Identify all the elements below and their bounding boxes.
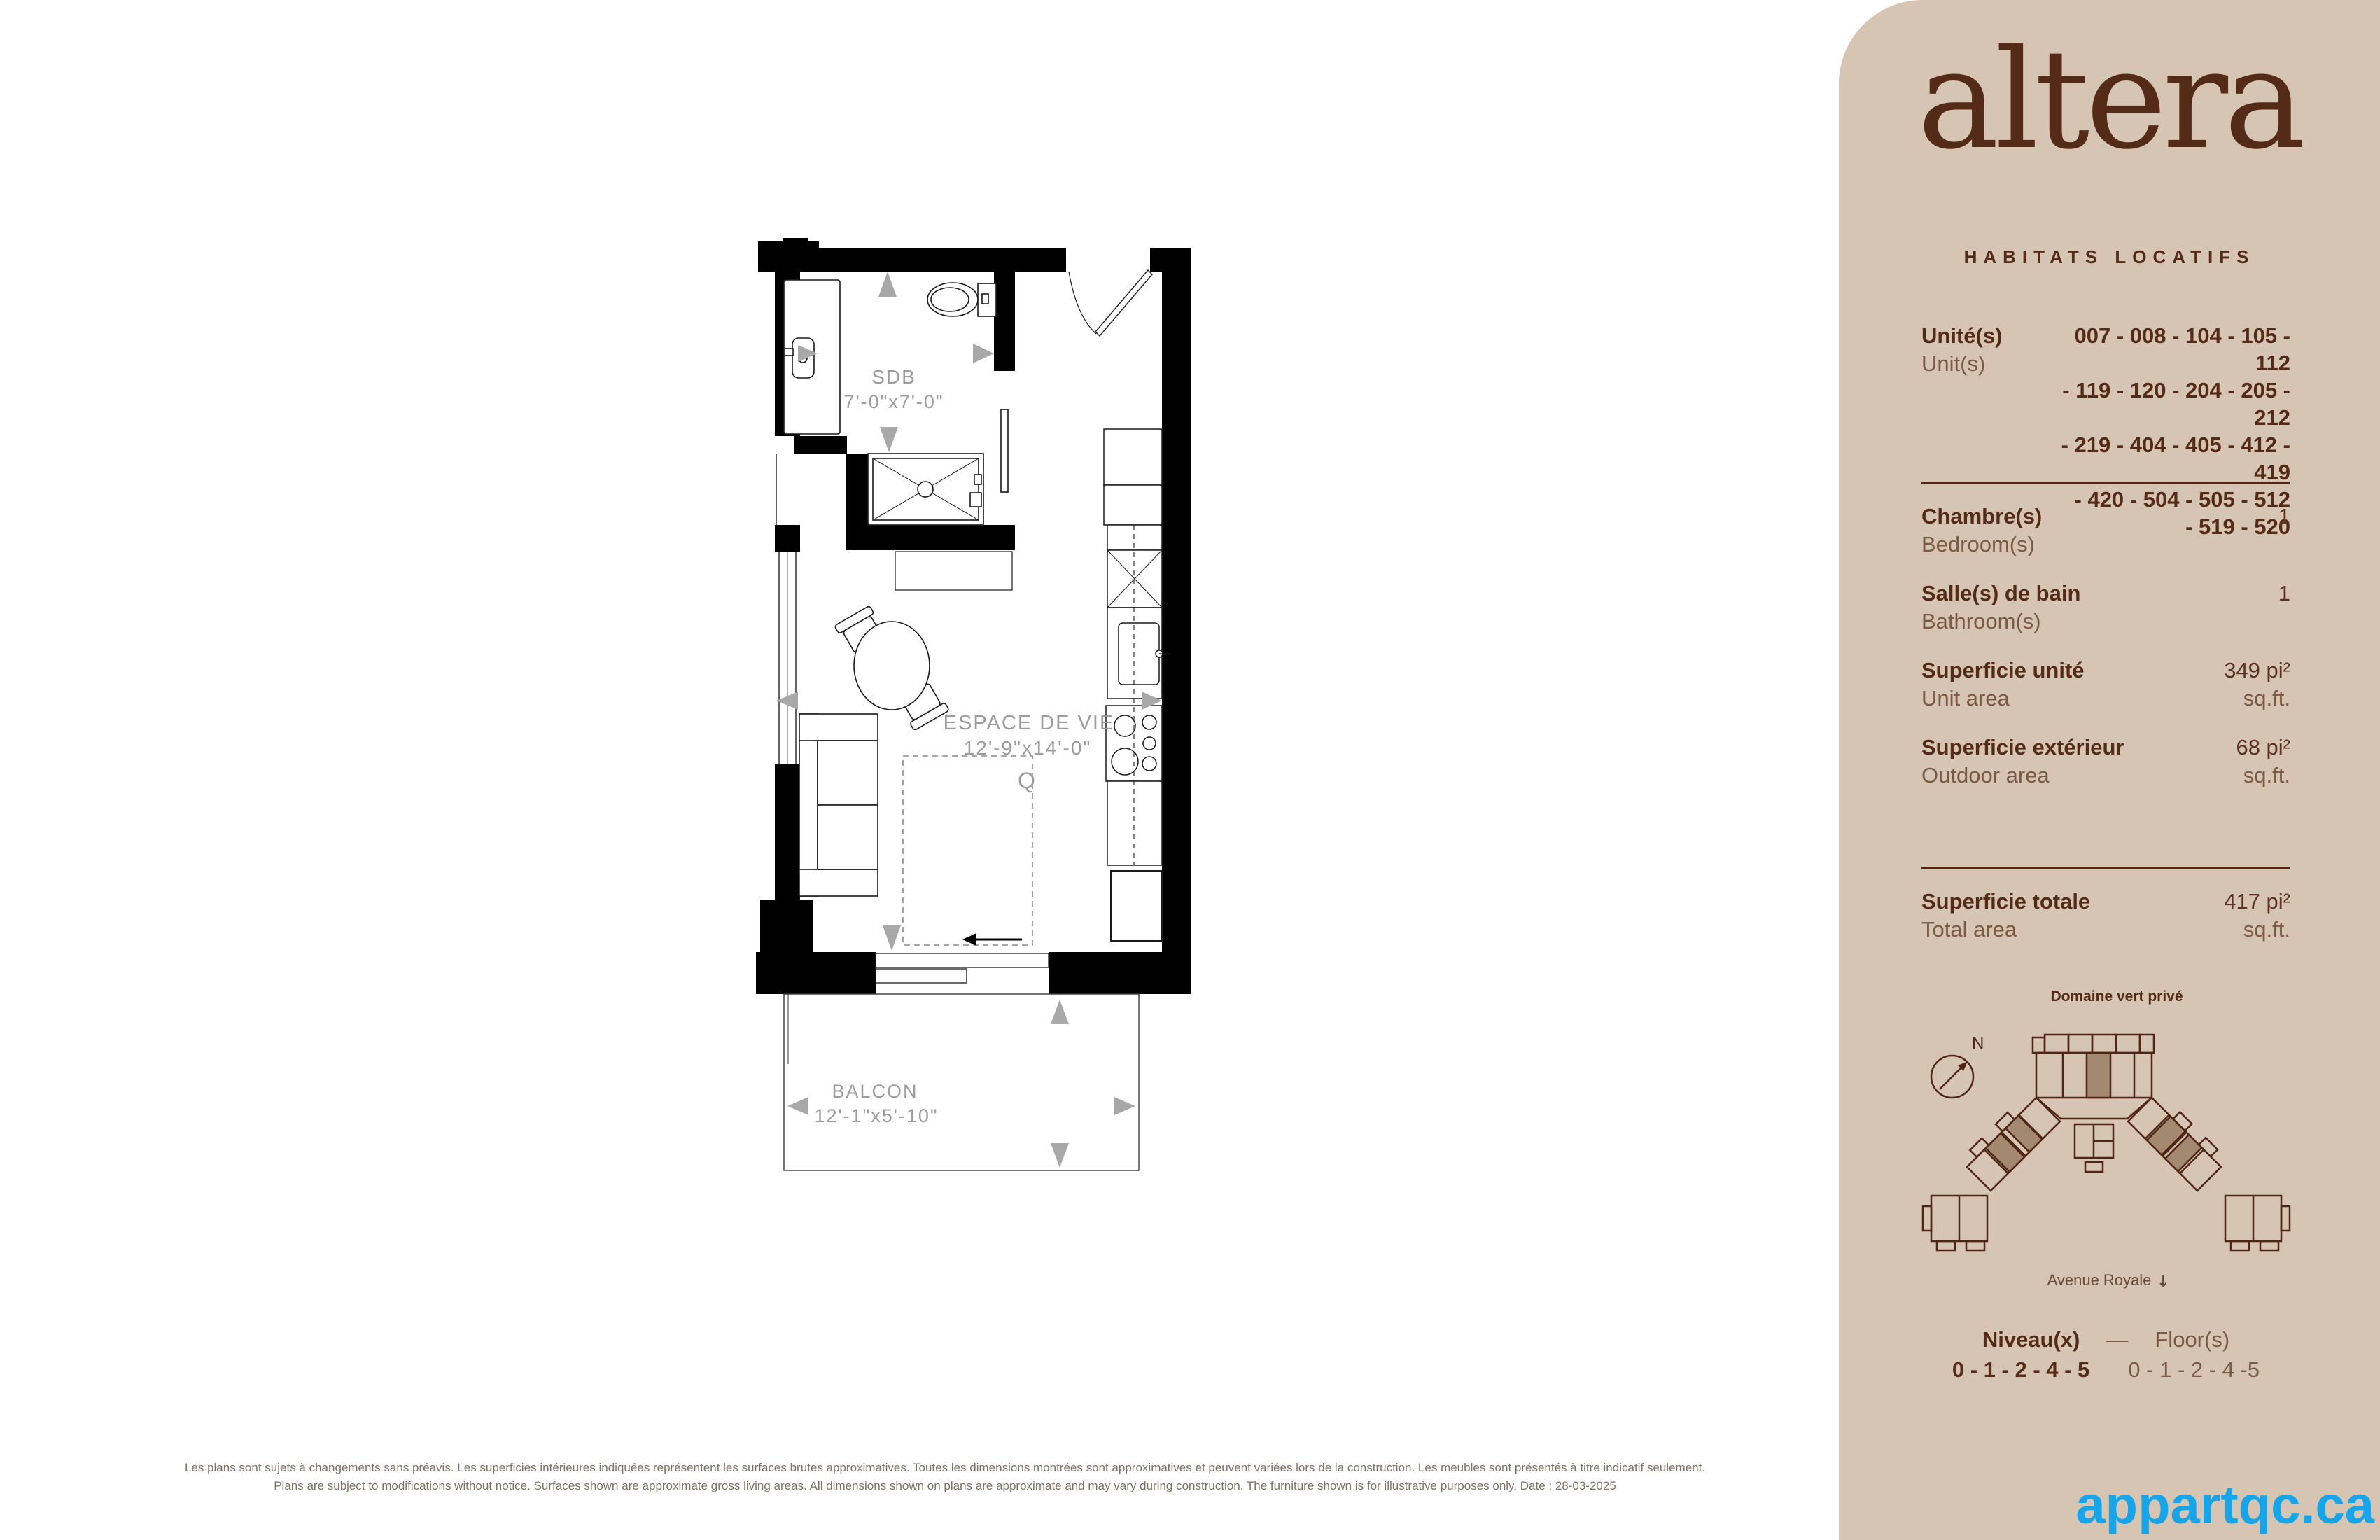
- arrow-up-icon: [1051, 1000, 1069, 1024]
- spec-row-total-area: Superficie totale Total area 417 pi² sq.…: [1921, 888, 2290, 944]
- sofa: [799, 714, 878, 896]
- spec-row-unit-area: Superficie unité Unit area 349 pi² sq.ft…: [1921, 657, 2290, 713]
- arrow-down-icon: [1051, 1143, 1069, 1168]
- total-label-en: Total area: [1921, 916, 2171, 944]
- door-swing-arrow: [963, 934, 1022, 945]
- wall-pillar-bottom-left: [760, 899, 813, 952]
- floor-plan: Q SDB 7'-0"x7'-0" ESPACE DE VIE 12'-9"x1…: [756, 238, 1204, 1179]
- shower-ledge: [895, 552, 1012, 590]
- wall-bathroom-right: [994, 265, 1015, 371]
- arrow-left-icon: [787, 1097, 808, 1115]
- bed-queen: Q: [903, 756, 1035, 945]
- living-dims: 12'-9"x14'-0": [964, 737, 1092, 759]
- disclaimer: Les plans sont sujets à changements sans…: [105, 1459, 1785, 1495]
- units-line: - 119 - 120 - 204 - 205 - 212: [2033, 377, 2290, 431]
- disclaimer-fr: Les plans sont sujets à changements sans…: [105, 1459, 1785, 1477]
- units-label-en: Unit(s): [1921, 350, 2033, 378]
- spec-value: 1: [2171, 580, 2290, 608]
- compass-north-label: N: [1972, 1034, 1984, 1053]
- wall-shower-left: [846, 454, 868, 525]
- floor-plan-drawing: Q SDB 7'-0"x7'-0" ESPACE DE VIE 12'-9"x1…: [756, 238, 1204, 1179]
- brand-logo: altera: [1839, 20, 2380, 181]
- spec-value: 1: [2171, 503, 2290, 531]
- total-value: 417 pi²: [2171, 888, 2290, 916]
- vanity-sink: [784, 280, 840, 434]
- spec-unit: sq.ft.: [2171, 685, 2290, 713]
- floors-block: Niveau(x) — Floor(s) 0 - 1 - 2 - 4 - 5 0…: [1921, 1325, 2290, 1385]
- bathroom-dims: 7'-0"x7'-0": [843, 391, 944, 412]
- wall-right: [1162, 248, 1191, 994]
- compass-icon: N: [1931, 1034, 1984, 1098]
- brand-tagline: HABITATS LOCATIFS: [1839, 246, 2380, 268]
- kitchen: [1104, 429, 1170, 941]
- kitchen-cabinet: [1104, 429, 1162, 485]
- dining-table: [834, 605, 949, 731]
- balcony-dims: 12'-1"x5'-10": [814, 1105, 938, 1126]
- units-line: 007 - 008 - 104 - 105 - 112: [2033, 322, 2290, 377]
- living-label: ESPACE DE VIE: [944, 712, 1115, 734]
- spec-label-fr: Superficie unité: [1921, 657, 2171, 685]
- units-label-fr: Unité(s): [1921, 322, 2033, 350]
- kitchen-counter: [1107, 781, 1162, 865]
- kitchen-cabinet: [1104, 485, 1162, 525]
- spec-label-fr: Salle(s) de bain: [1921, 580, 2171, 608]
- siteplan-title: Domaine vert privé: [2050, 988, 2183, 1004]
- arrow-right-icon: [973, 344, 994, 363]
- info-sidebar: altera HABITATS LOCATIFS Unité(s) Unit(s…: [1839, 0, 2380, 1540]
- bathroom-label: SDB: [871, 366, 916, 388]
- patio-door: [876, 953, 1049, 983]
- kitchen-sink: [1107, 608, 1170, 699]
- highlighted-unit: [2087, 1053, 2110, 1098]
- spec-label-fr: Superficie extérieur: [1921, 734, 2171, 762]
- wall-top: [758, 248, 1066, 272]
- toilet: [927, 283, 996, 316]
- arrow-down-icon: [883, 925, 901, 951]
- floors-separator: —: [2106, 1325, 2128, 1354]
- kitchen-fridge: [1111, 871, 1162, 941]
- spec-value: 349 pi²: [2171, 657, 2290, 685]
- wall-bottom-right: [1049, 952, 1191, 994]
- watermark: appartqc.ca: [2075, 1475, 2374, 1536]
- wall-bathroom-band: [794, 436, 847, 454]
- spec-row-outdoor-area: Superficie extérieur Outdoor area 68 pi²…: [1921, 734, 2290, 790]
- total-unit: sq.ft.: [2171, 916, 2290, 944]
- wall-bottom-left: [756, 952, 876, 994]
- spec-label-en: Unit area: [1921, 685, 2171, 713]
- arrow-up-icon: [878, 272, 897, 297]
- spec-row-bedrooms: Chambre(s) Bedroom(s) 1: [1921, 503, 2290, 559]
- bed-size-marker: Q: [1018, 768, 1035, 793]
- entry-door: [1069, 270, 1152, 336]
- site-plan: Domaine vert privé N: [1910, 986, 2302, 1294]
- wall-shower-bottom: [846, 525, 1015, 550]
- total-label-fr: Superficie totale: [1921, 888, 2171, 916]
- spec-label-en: Bedroom(s): [1921, 531, 2171, 559]
- spec-label-en: Bathroom(s): [1921, 608, 2171, 636]
- street-arrow-down-icon: ↓: [2157, 1273, 2169, 1291]
- spec-label-en: Outdoor area: [1921, 762, 2171, 790]
- spec-value: 68 pi²: [2171, 734, 2290, 762]
- units-line: - 219 - 404 - 405 - 412 - 419: [2033, 431, 2290, 486]
- balcony-label: BALCON: [832, 1081, 918, 1102]
- street-label: Avenue Royale: [2047, 1271, 2152, 1289]
- left-wall-windows: [776, 454, 796, 764]
- kitchen-corner-cabinet: [1107, 550, 1162, 608]
- arrow-down-icon: [880, 427, 898, 452]
- floors-value-en: 0 - 1 - 2 - 4 -5: [2128, 1354, 2260, 1385]
- divider: [1921, 867, 2290, 869]
- floors-value-fr: 0 - 1 - 2 - 4 - 5: [1952, 1354, 2089, 1385]
- spec-unit: sq.ft.: [2171, 762, 2290, 790]
- spec-label-fr: Chambre(s): [1921, 503, 2171, 531]
- spec-row-bathrooms: Salle(s) de bain Bathroom(s) 1: [1921, 580, 2290, 636]
- bathroom-pocket-door: [1001, 409, 1008, 492]
- building-footprint: [1923, 1035, 2290, 1250]
- floors-label-en: Floor(s): [2155, 1325, 2229, 1354]
- shower: [868, 454, 983, 525]
- disclaimer-en: Plans are subject to modifications witho…: [105, 1477, 1785, 1495]
- kitchen-cabinet: [1107, 525, 1162, 550]
- divider: [1921, 482, 2290, 484]
- floors-label-fr: Niveau(x): [1982, 1325, 2080, 1354]
- arrow-right-icon: [1114, 1097, 1135, 1115]
